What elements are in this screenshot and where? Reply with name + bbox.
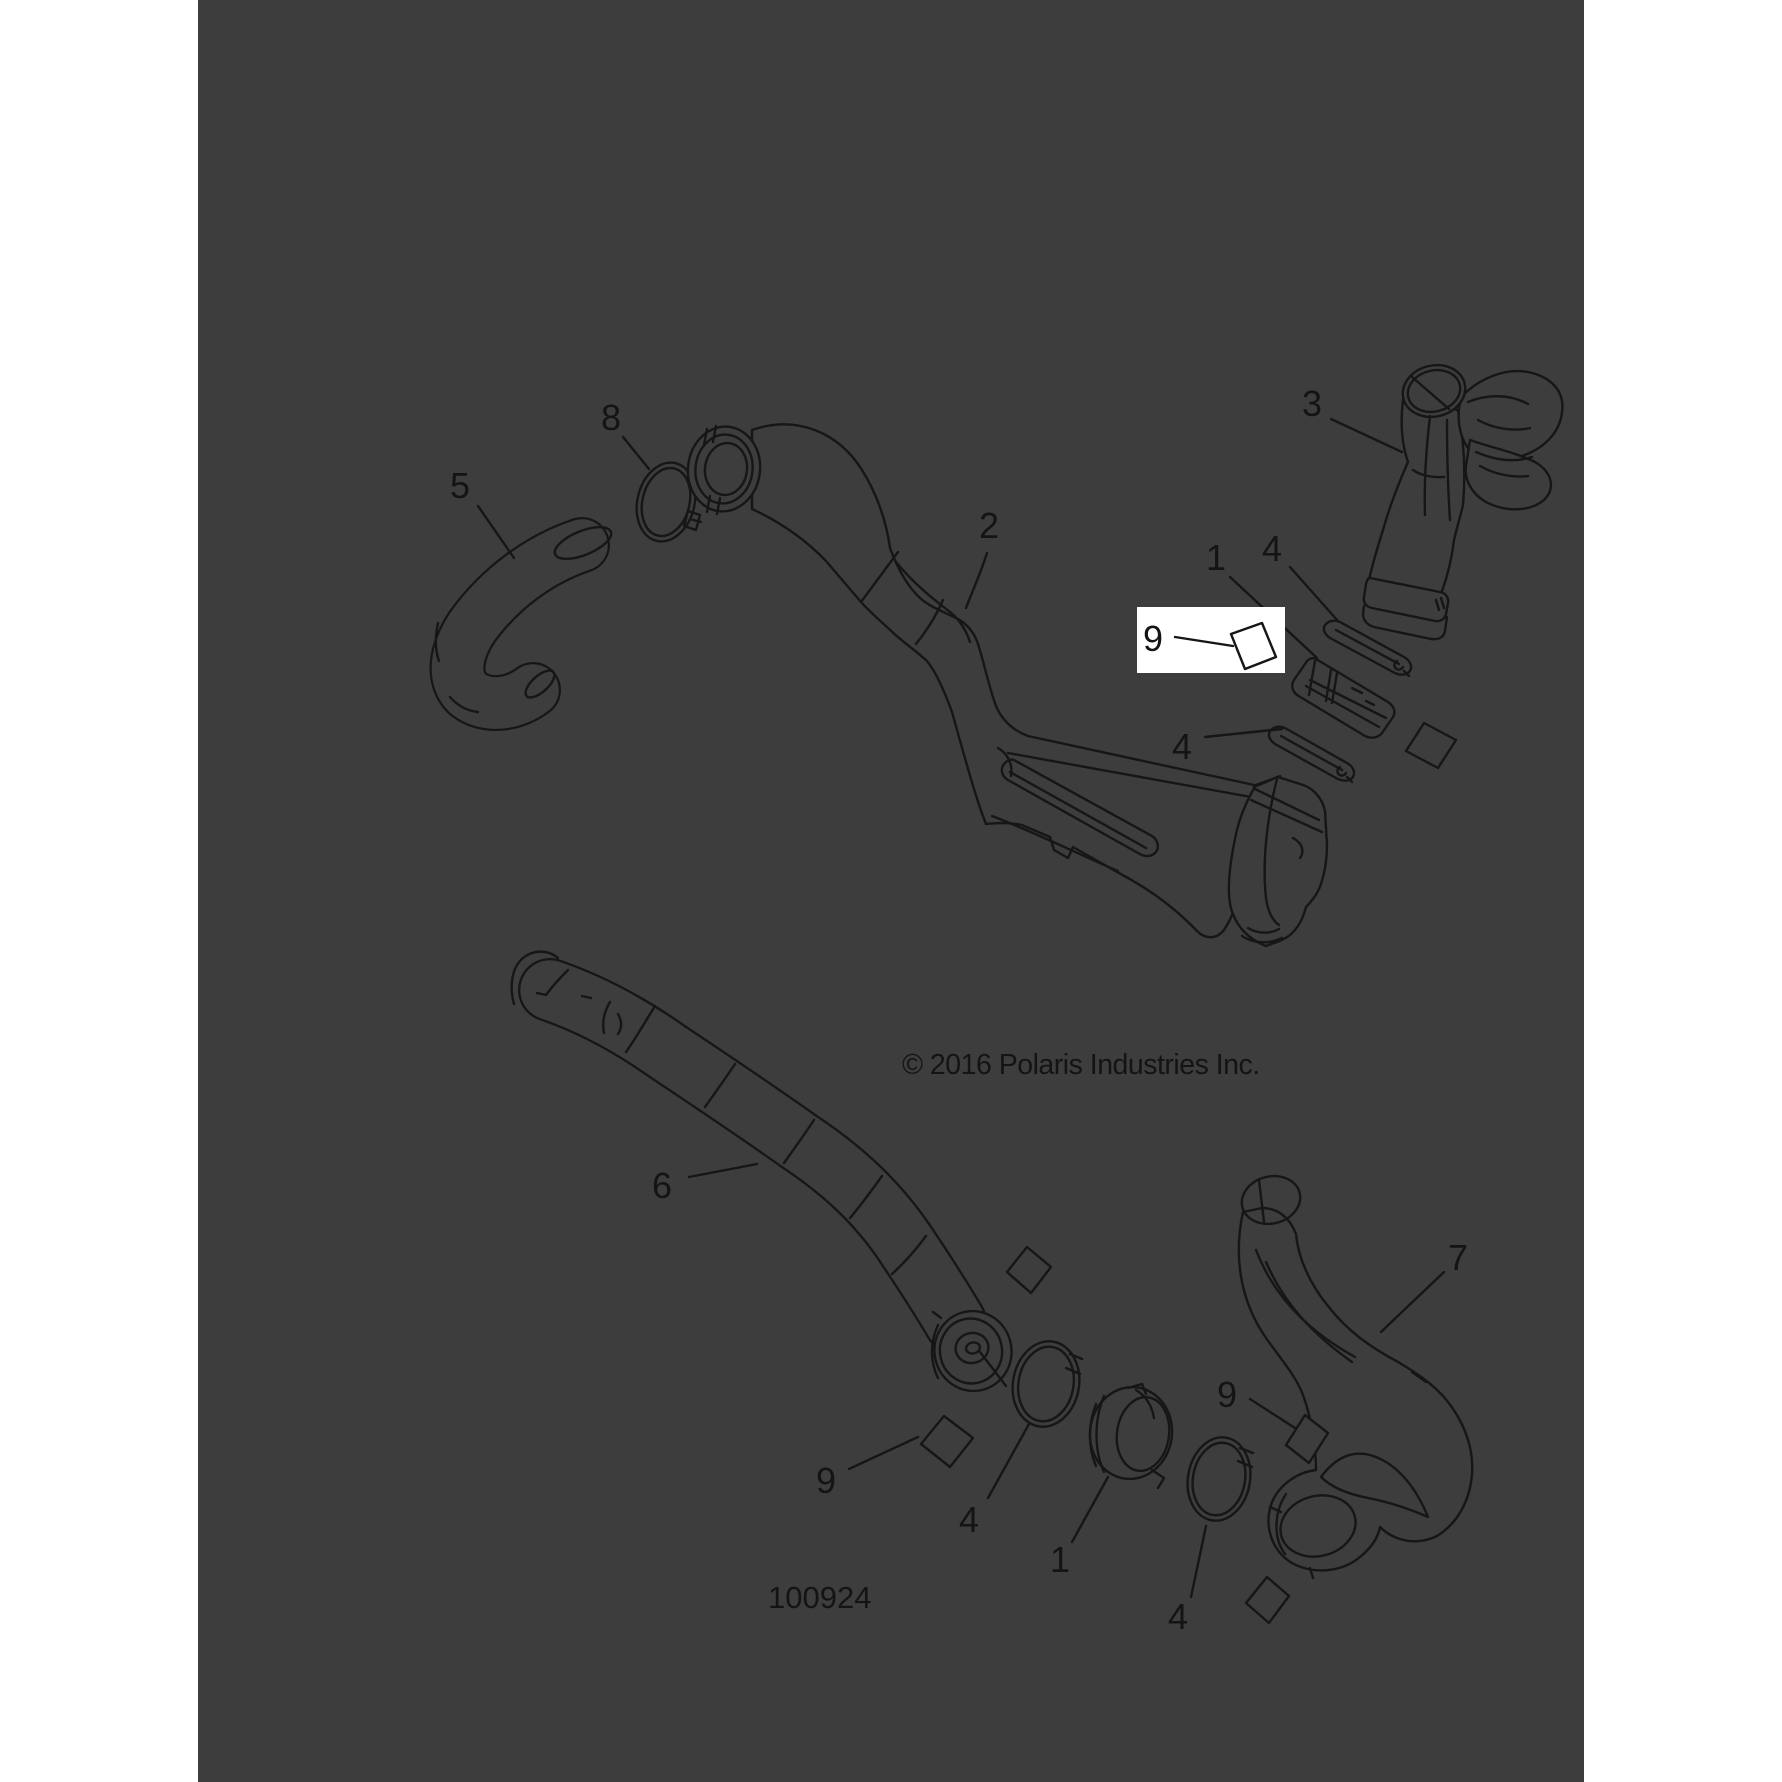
svg-text:9: 9 <box>816 1460 836 1501</box>
svg-text:4: 4 <box>1168 1596 1188 1637</box>
svg-text:4: 4 <box>1172 726 1192 767</box>
svg-text:3: 3 <box>1302 383 1322 424</box>
svg-text:2: 2 <box>979 505 999 546</box>
svg-text:4: 4 <box>959 1499 979 1540</box>
svg-text:4: 4 <box>1262 528 1282 569</box>
svg-text:1: 1 <box>1050 1539 1070 1580</box>
svg-text:© 2016 Polaris Industries Inc.: © 2016 Polaris Industries Inc. <box>902 1049 1260 1081</box>
svg-text:7: 7 <box>1448 1237 1468 1278</box>
svg-text:5: 5 <box>450 465 470 506</box>
svg-text:9: 9 <box>1217 1374 1237 1415</box>
svg-text:1: 1 <box>1206 537 1226 578</box>
svg-text:9: 9 <box>1143 618 1163 659</box>
svg-text:100924: 100924 <box>768 1580 871 1615</box>
svg-text:6: 6 <box>652 1165 672 1206</box>
svg-text:8: 8 <box>601 397 621 438</box>
